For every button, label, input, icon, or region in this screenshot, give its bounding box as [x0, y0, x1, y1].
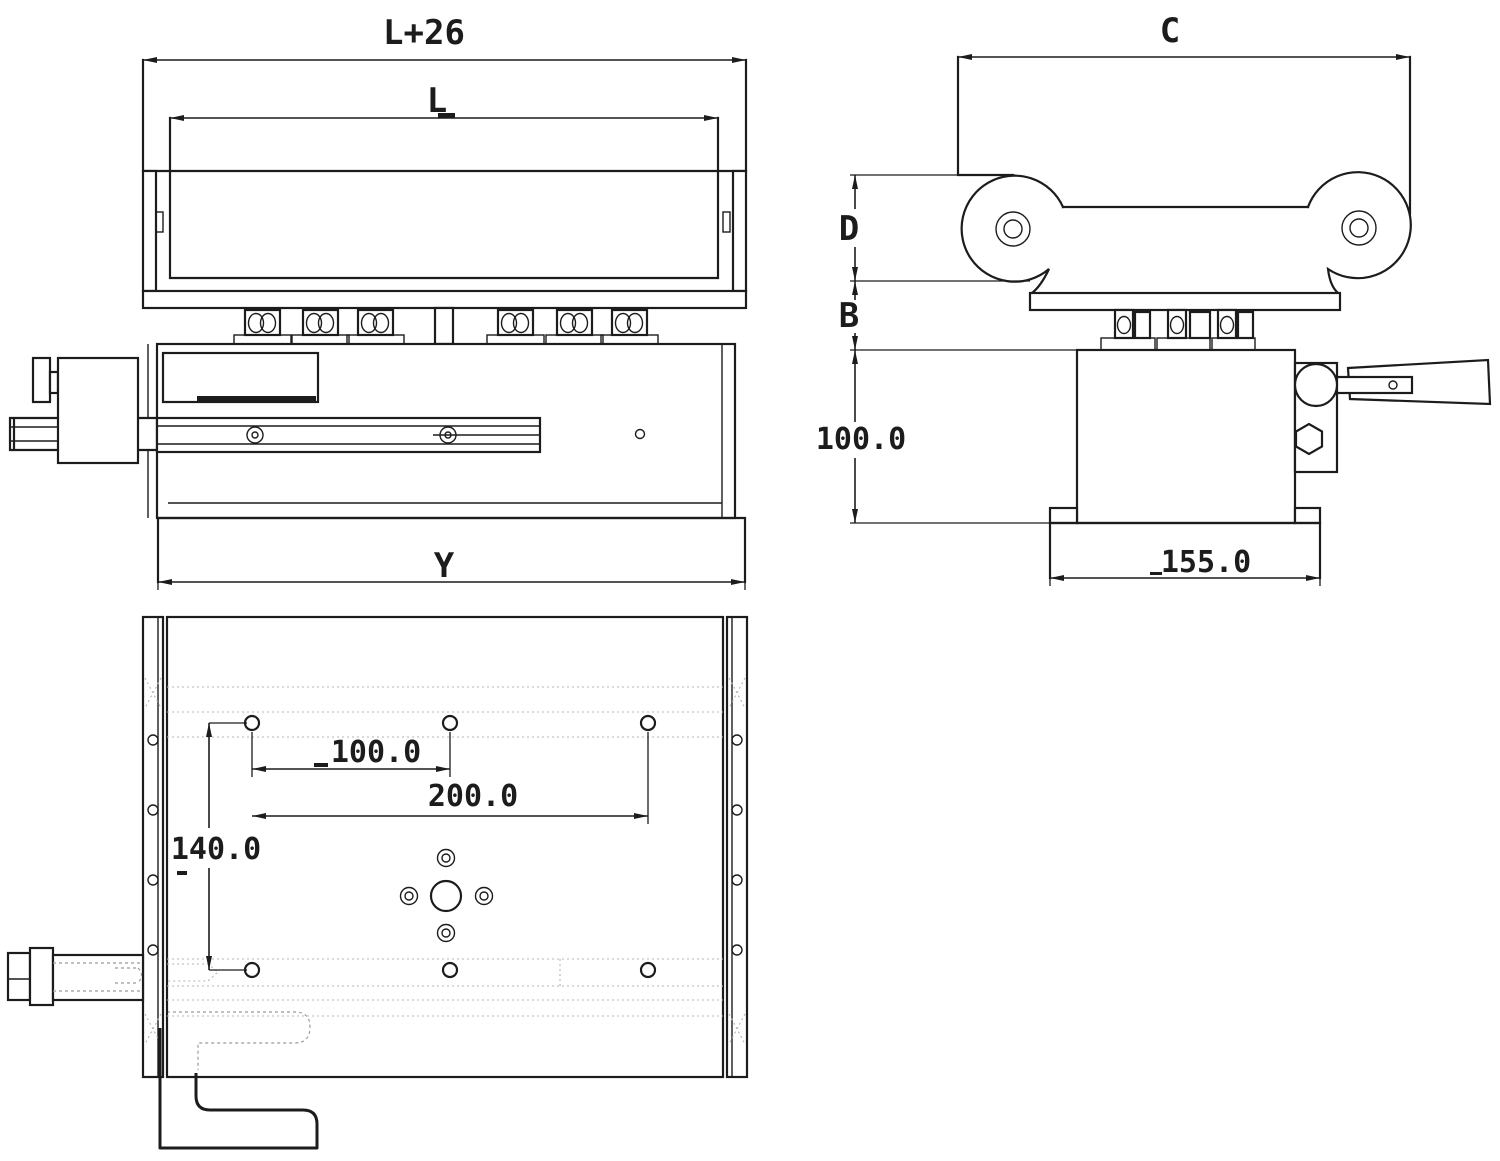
bent-bracket-plate [160, 1028, 317, 1148]
base-plate-side: 155.0 [1050, 523, 1320, 586]
dim-label-hole-pitch-small: 100.0 [331, 735, 421, 770]
dim-label-base-width-side: 155.0 [1161, 545, 1251, 580]
dim-label-spacer-height: B [839, 296, 859, 336]
motor-assembly-front [33, 358, 138, 463]
body-foot-right [1295, 508, 1320, 523]
dim-tick [177, 871, 187, 875]
side-dimensions: D B 100.0 [816, 175, 1077, 523]
motor-body [58, 358, 138, 463]
body-foot-left [1050, 508, 1077, 523]
bracket-hole-right [1342, 211, 1376, 245]
spacer-plate [1030, 293, 1340, 310]
hex-bolt [1296, 424, 1322, 454]
dim-label-overall-width: L+26 [383, 13, 465, 53]
bracket-hole-left [996, 212, 1030, 246]
center-bolt-pattern [401, 850, 493, 942]
carriage-block [163, 353, 318, 402]
roller-bearings-side [1101, 310, 1255, 350]
left-rail [143, 617, 163, 1077]
roller-bearings-front [234, 308, 658, 344]
dim-label-body-height: 100.0 [816, 422, 906, 457]
clamp-knob [1295, 364, 1337, 406]
dim-label-hole-pitch-large: 200.0 [428, 779, 518, 814]
table-plate [170, 118, 718, 278]
bottom-view: 100.0 200.0 140.0 [8, 617, 747, 1148]
handle-bar [1337, 377, 1412, 393]
right-cheek-notch [723, 212, 730, 232]
dim-tick [314, 763, 328, 767]
technical-drawing-canvas: L+26 L [0, 0, 1500, 1161]
clamp-handle-assembly [1295, 360, 1490, 472]
front-view: L+26 L [10, 13, 746, 590]
hidden-slot [167, 964, 218, 981]
motor-assembly-bottom [8, 948, 143, 1005]
dim-label-base-width: Y [434, 546, 455, 586]
dogbone-bracket [962, 172, 1411, 293]
left-cheek [143, 171, 156, 291]
right-cheek [733, 171, 746, 291]
side-slab [958, 57, 1410, 214]
side-view: C [816, 11, 1490, 586]
dim-label-row-pitch: 140.0 [171, 832, 261, 867]
dim-label-top-width: C [1160, 11, 1180, 51]
dim-tick [438, 113, 455, 118]
table-flange [143, 291, 746, 308]
motor-knob [33, 358, 50, 402]
dim-label-bracket-height: D [839, 209, 859, 249]
carriage-seal-bar [197, 396, 316, 403]
bent-plate-hidden [167, 1012, 310, 1070]
base-plate-front: Y [158, 518, 745, 590]
center-post [435, 308, 453, 344]
main-body-side [1077, 350, 1295, 523]
drawing-sheet: L+26 L [0, 0, 1500, 1161]
bottom-dimensions: 100.0 200.0 140.0 [171, 723, 648, 970]
right-rail [727, 617, 747, 1077]
